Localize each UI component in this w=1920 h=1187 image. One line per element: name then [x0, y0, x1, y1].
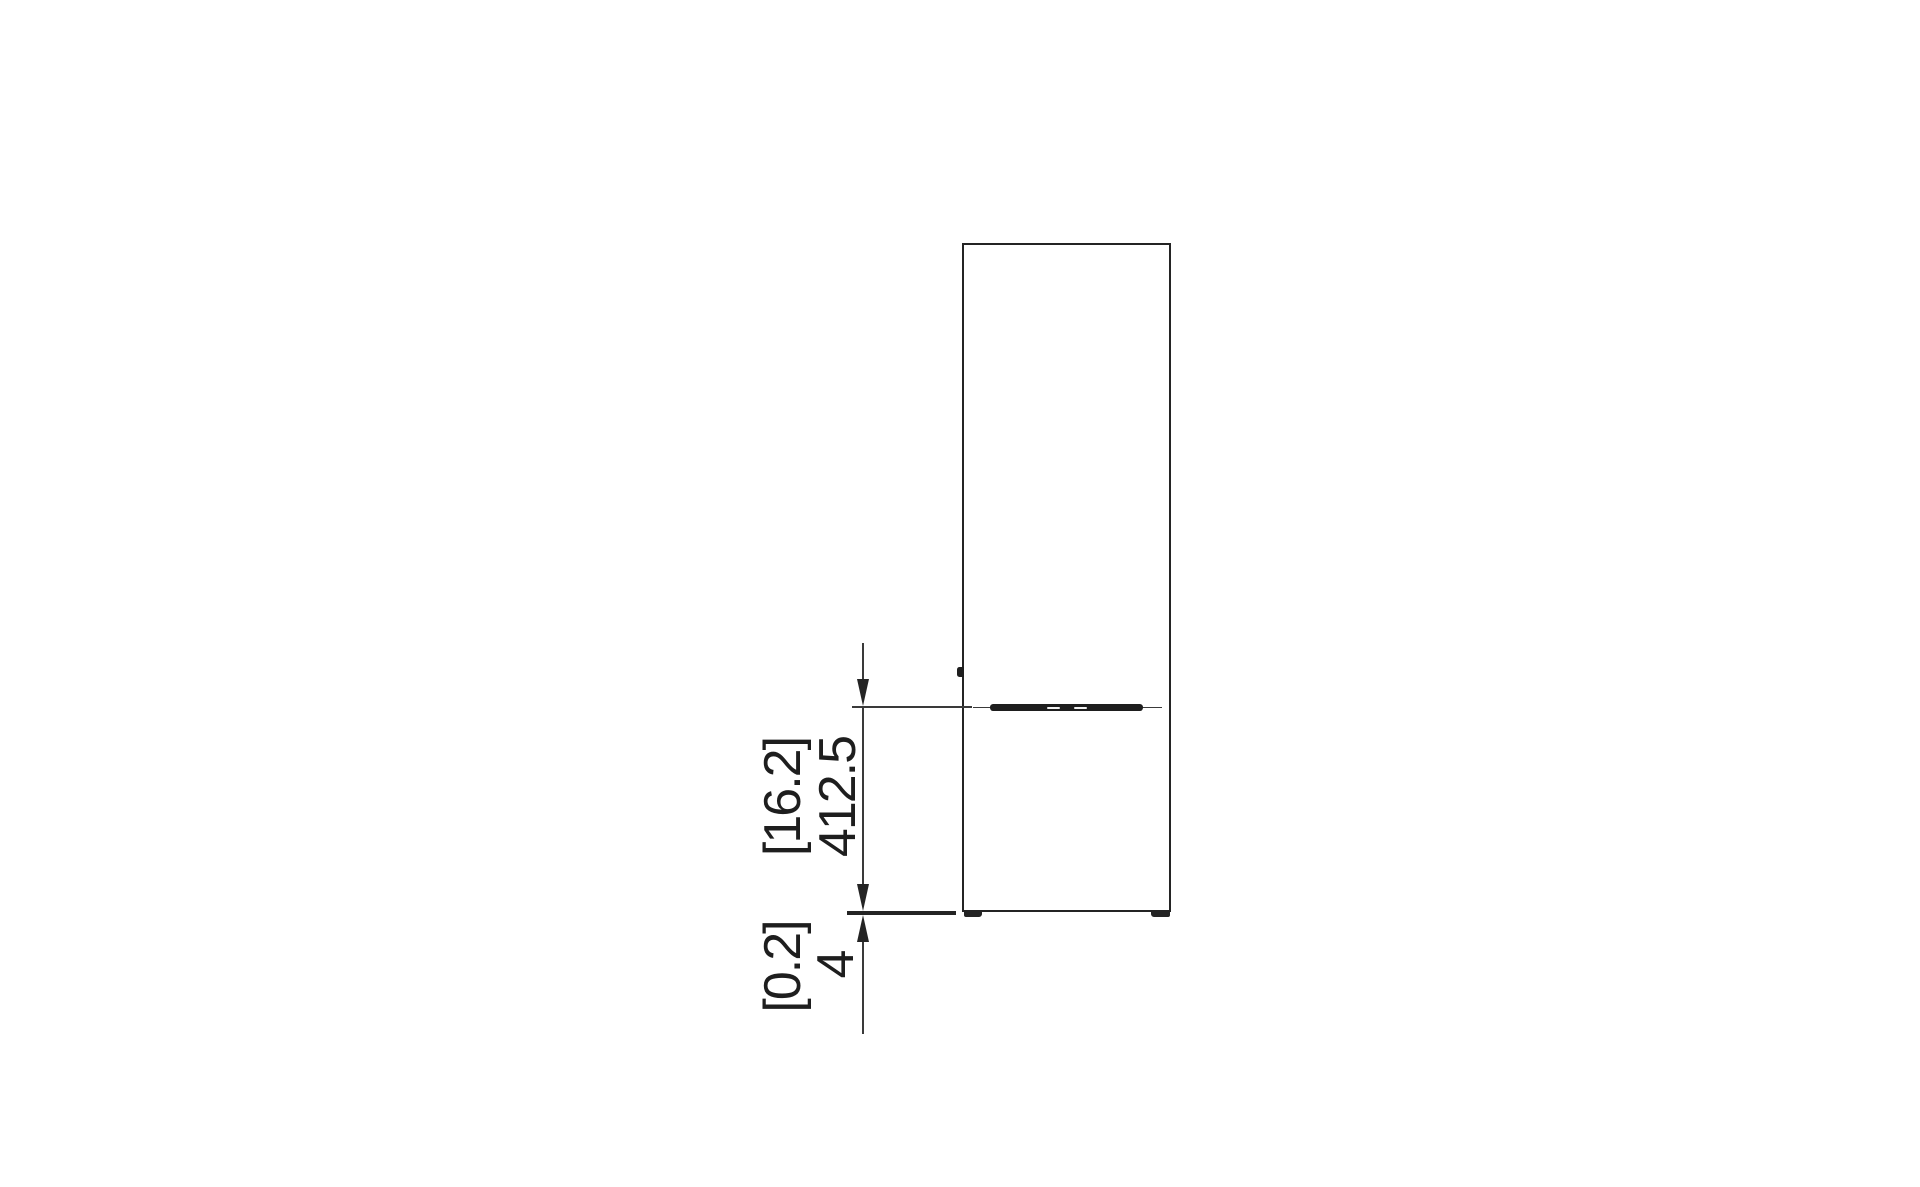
slot-extension-line	[852, 706, 972, 707]
product-body-outline	[962, 243, 1171, 912]
left-foot	[964, 911, 982, 917]
clearance-dimension-imperial-label: [0.2]	[755, 857, 811, 1077]
technical-drawing-canvas: [16.2] 412.5 [0.2] 4	[0, 0, 1920, 1187]
right-foot	[1151, 911, 1170, 917]
dimension-leader-top	[862, 643, 864, 679]
switch-tab	[957, 667, 964, 678]
burner-slot	[990, 704, 1143, 710]
burner-slot-vent-dash	[1074, 707, 1087, 709]
clearance-dimension-metric-label: 4	[808, 855, 864, 1075]
burner-slot-vent-dash	[1047, 707, 1060, 709]
